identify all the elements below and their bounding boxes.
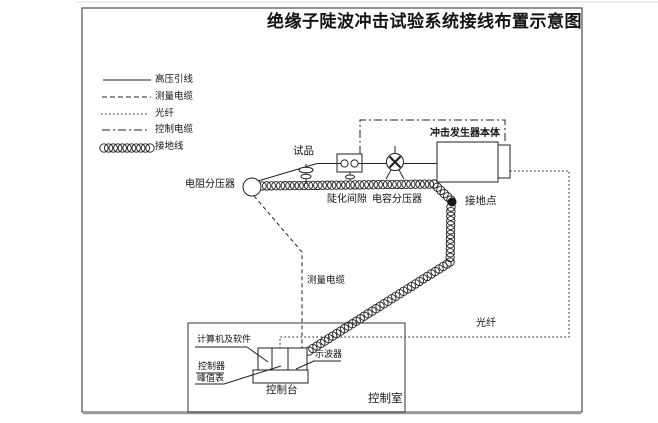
label-steepening-gap: 陡化间隙 xyxy=(327,194,367,205)
impulse-generator-symbol xyxy=(437,142,510,182)
measurement-cable-line xyxy=(254,196,302,350)
label-peak-meter: 峰值表 xyxy=(197,374,224,384)
control-console-symbol xyxy=(253,348,308,383)
label-resistive-divider: 电阻分压器 xyxy=(185,179,235,190)
legend-label-hv-lead: 高压引线 xyxy=(155,75,193,85)
label-oscilloscope: 示波器 xyxy=(315,350,342,360)
wiring-diagram: 绝缘子陡波冲击试验系统接线布置示意图 高压引线 测量电缆 光纤 控制电缆 接地线… xyxy=(0,0,658,423)
label-capacitive-divider: 电容分压器 xyxy=(372,194,422,205)
legend-label-measure-cable: 测量电缆 xyxy=(155,92,193,102)
steepening-gap-symbol xyxy=(337,154,362,180)
label-impulse-generator: 冲击发生器本体 xyxy=(430,128,500,139)
diagram-title: 绝缘子陡波冲击试验系统接线布置示意图 xyxy=(238,13,582,32)
test-object-symbol xyxy=(299,164,313,184)
legend-label-optical-fiber: 光纤 xyxy=(155,109,174,119)
ground-point-dot xyxy=(448,198,457,207)
label-optical-fiber: 光纤 xyxy=(476,318,496,329)
legend-label-ground-wire: 接地线 xyxy=(155,142,184,152)
legend-line-samples xyxy=(101,80,151,130)
label-control-console: 控制台 xyxy=(266,385,298,397)
label-ground-point: 接地点 xyxy=(465,196,497,208)
legend-label-control-cable: 控制电缆 xyxy=(155,125,193,135)
label-control-room: 控制室 xyxy=(368,393,403,406)
capacitive-divider-symbol xyxy=(386,146,404,179)
optical-fiber-line xyxy=(280,171,569,348)
label-test-object: 试品 xyxy=(293,146,314,158)
resistive-divider-symbol xyxy=(243,178,261,196)
label-controller: 控制器 xyxy=(198,362,225,372)
label-computer-software: 计算机及软件 xyxy=(197,335,251,345)
label-measurement-cable: 测量电缆 xyxy=(307,276,345,286)
